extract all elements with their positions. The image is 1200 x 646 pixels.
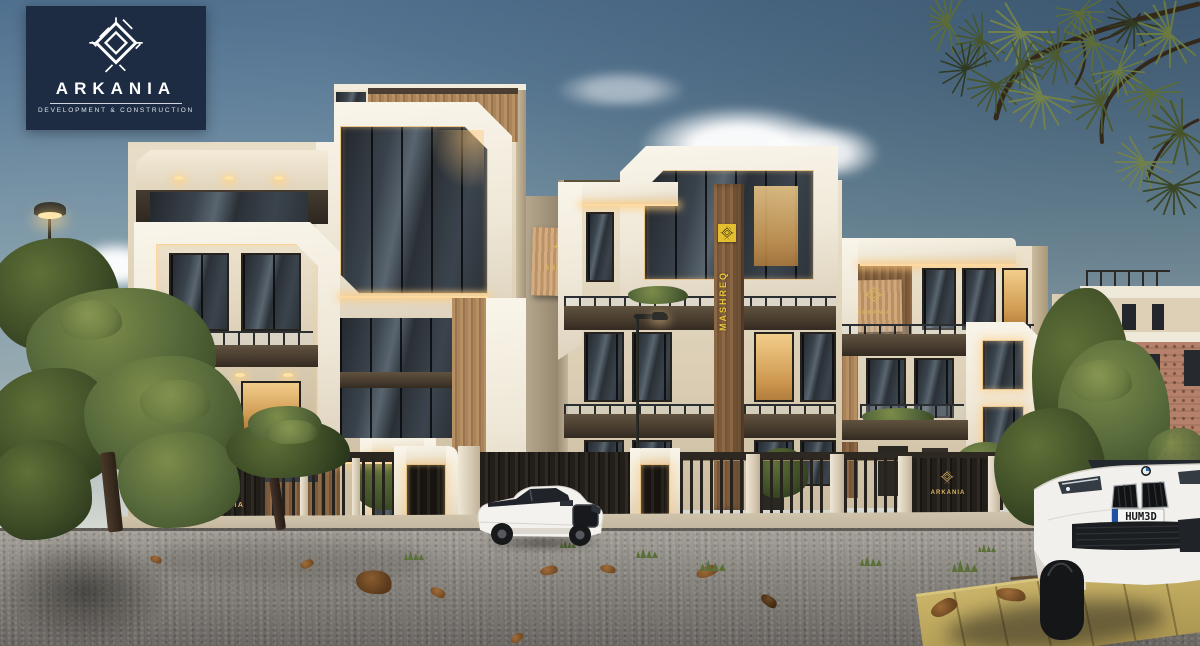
fence-section	[844, 458, 898, 514]
street-lamp-glow	[38, 212, 62, 219]
led-strip	[582, 204, 678, 206]
fence-post	[352, 458, 360, 522]
downlight	[274, 176, 284, 180]
brand-tagline: DEVELOPMENT & CONSTRUCTION	[26, 107, 206, 114]
fascia	[368, 88, 518, 94]
window	[800, 332, 836, 402]
license-plate-text: HUM3D	[1125, 511, 1157, 523]
gate-emblem-icon	[940, 470, 954, 484]
brand-name: ARKANIA	[26, 79, 206, 99]
lit-window	[754, 332, 794, 402]
tree-highlight	[140, 380, 210, 424]
arkania-logo-icon	[87, 15, 145, 73]
fence-pillar	[746, 454, 760, 518]
tree-foliage	[118, 432, 240, 528]
tree-shadow	[0, 536, 170, 646]
lit-window	[1002, 268, 1028, 330]
street-lamp-head	[652, 312, 668, 320]
floor-band	[834, 420, 968, 440]
cloud	[556, 70, 686, 106]
entry-portal-jamb	[630, 448, 640, 518]
window	[962, 268, 996, 330]
entry-portal-jamb	[670, 448, 680, 518]
tree-highlight	[1070, 360, 1132, 402]
tree-highlight	[266, 420, 318, 444]
tree-foliage	[0, 440, 92, 540]
gate-sign-label: ARKANIA	[918, 490, 978, 496]
vertical-banner-text: MASHREQ	[718, 246, 736, 356]
brand-rule	[50, 103, 182, 104]
window	[241, 253, 301, 331]
led-glow	[428, 130, 484, 190]
white-suv	[474, 476, 606, 550]
brand-card: ARKANIA DEVELOPMENT & CONSTRUCTION	[26, 6, 206, 130]
window	[922, 268, 956, 330]
fence-section	[760, 458, 830, 516]
banner-logo-icon	[718, 224, 736, 242]
fence-pillar	[898, 456, 912, 514]
window	[586, 212, 614, 282]
downlight	[174, 176, 184, 180]
architectural-render-scene: ARKANIA ARKANIA	[0, 0, 1200, 646]
window	[1122, 304, 1136, 330]
floor-band	[564, 414, 836, 438]
downlight	[235, 373, 245, 377]
balcony-plants	[628, 286, 688, 304]
led-strip	[860, 264, 1014, 266]
framed-window	[982, 340, 1024, 390]
floor-band	[340, 372, 452, 388]
arkania-emblem-icon	[864, 285, 884, 305]
window	[584, 332, 624, 402]
white-bmw-sedan: HUM3D	[1028, 460, 1200, 646]
window	[1184, 350, 1200, 386]
window	[150, 192, 308, 222]
downlight	[224, 176, 234, 180]
fence-section	[680, 458, 746, 518]
balcony-soffit	[136, 150, 328, 190]
lit-window	[754, 186, 798, 266]
white-frame-leg	[558, 182, 582, 360]
entry-gate	[640, 464, 670, 518]
window	[1152, 304, 1164, 330]
fence-pillar	[830, 454, 844, 514]
tree-highlight	[60, 300, 122, 340]
pine-branches	[930, 0, 1200, 215]
gate-panel	[912, 458, 988, 514]
downlight	[283, 373, 293, 377]
